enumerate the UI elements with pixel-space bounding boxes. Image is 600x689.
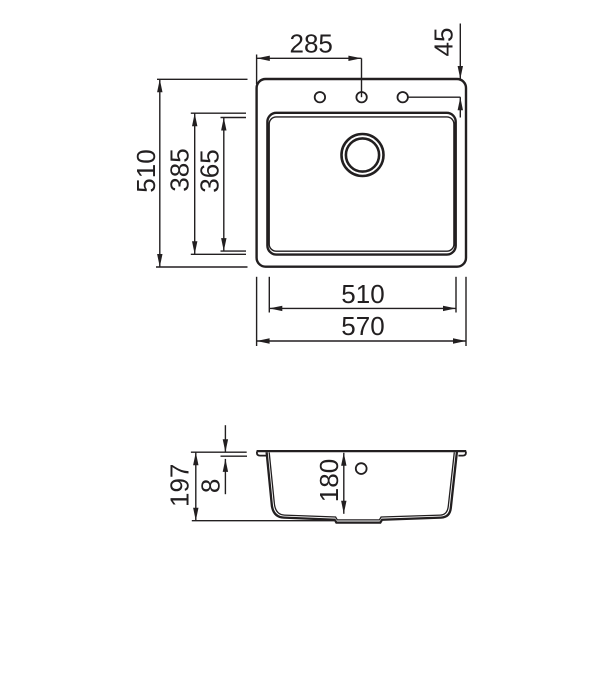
svg-text:510: 510	[341, 279, 384, 309]
svg-text:45: 45	[429, 28, 459, 57]
svg-text:197: 197	[164, 464, 194, 507]
svg-text:570: 570	[341, 311, 384, 341]
svg-text:285: 285	[290, 29, 333, 59]
svg-text:8: 8	[196, 479, 226, 493]
svg-text:365: 365	[194, 149, 224, 192]
svg-text:385: 385	[165, 148, 195, 191]
svg-text:180: 180	[314, 459, 344, 502]
svg-text:510: 510	[131, 149, 161, 192]
